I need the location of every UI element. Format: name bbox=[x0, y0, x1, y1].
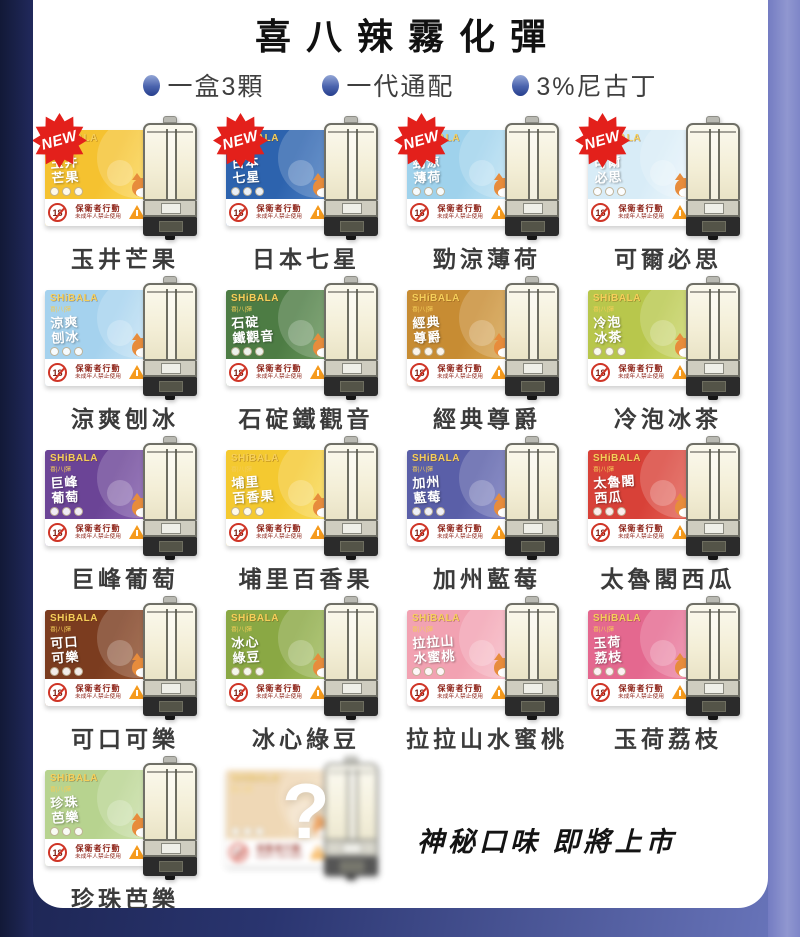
product-box: SHiBALA 喜|八|彈 埔里百香果 18 保衛者行動 未成年人禁止使用 bbox=[226, 450, 340, 546]
brand-logo: SHiBALA bbox=[231, 453, 279, 464]
pod-mouthpiece bbox=[525, 116, 539, 123]
flavor-badge-icons bbox=[412, 187, 445, 196]
pod-image bbox=[143, 276, 197, 400]
age-18-icon: 18 bbox=[410, 363, 429, 382]
age-18-icon: 18 bbox=[229, 683, 248, 702]
box-flavor-name: 冷泡冰茶 bbox=[593, 315, 623, 347]
warning-text: 保衛者行動 未成年人禁止使用 bbox=[69, 685, 127, 701]
pod-contact bbox=[708, 716, 718, 720]
pod-tank bbox=[686, 283, 740, 361]
bullet-item-nicotine: 3%尼古丁 bbox=[512, 67, 657, 103]
pod-mouthpiece bbox=[525, 276, 539, 283]
pod-base bbox=[324, 377, 378, 396]
brand-logo: SHiBALA bbox=[593, 613, 641, 624]
box-artwork: SHiBALA 喜|八|彈 可口可樂 bbox=[45, 610, 159, 679]
pod-connector bbox=[686, 521, 740, 537]
brand-logo: SHiBALA bbox=[593, 453, 641, 464]
flavor-badge-icons bbox=[231, 667, 264, 676]
pod-connector bbox=[143, 841, 197, 857]
pod-image bbox=[505, 596, 559, 720]
product-card[interactable]: SHiBALA 喜|八|彈 冰心綠豆 18 保衛者行動 未成年人禁止使用 冰心綠… bbox=[220, 588, 401, 748]
brand-subtitle: 喜|八|彈 bbox=[412, 625, 433, 634]
pod-mouthpiece bbox=[344, 436, 358, 443]
pod-image bbox=[324, 596, 378, 720]
pod-mouthpiece bbox=[525, 596, 539, 603]
product-card[interactable]: SHiBALA 喜|八|彈 埔里百香果 18 保衛者行動 未成年人禁止使用 埔里… bbox=[220, 428, 401, 588]
pod-tank bbox=[505, 123, 559, 201]
pod-image bbox=[686, 596, 740, 720]
pod-tank bbox=[324, 283, 378, 361]
pod-tank bbox=[143, 283, 197, 361]
pod-connector bbox=[324, 521, 378, 537]
warning-strip: 18 保衛者行動 未成年人禁止使用 bbox=[588, 679, 702, 706]
pod-image bbox=[143, 756, 197, 880]
pod-tank bbox=[505, 443, 559, 521]
pod-image bbox=[505, 436, 559, 560]
warning-strip: 18 保衛者行動 未成年人禁止使用 bbox=[588, 519, 702, 546]
product-box: SHiBALA 喜|八|彈 加州藍莓 18 保衛者行動 未成年人禁止使用 bbox=[407, 450, 521, 546]
age-18-icon: 18 bbox=[410, 523, 429, 542]
pod-image bbox=[143, 116, 197, 240]
box-artwork: SHiBALA 喜|八|彈 埔里百香果 bbox=[226, 450, 340, 519]
box-artwork: SHiBALA 喜|八|彈 拉拉山水蜜桃 bbox=[407, 610, 521, 679]
box-flavor-name: 經典尊爵 bbox=[412, 315, 442, 347]
brand-subtitle: 喜|八|彈 bbox=[593, 625, 614, 634]
pod-image bbox=[324, 436, 378, 560]
pod-mouthpiece bbox=[163, 596, 177, 603]
age-18-icon: 18 bbox=[48, 523, 67, 542]
product-card[interactable]: SHiBALA 喜|八|彈 巨峰葡萄 18 保衛者行動 未成年人禁止使用 巨峰葡… bbox=[39, 428, 220, 588]
pod-base bbox=[686, 217, 740, 236]
pod-tank bbox=[143, 443, 197, 521]
pod-tank bbox=[143, 123, 197, 201]
age-18-icon: 18 bbox=[48, 203, 67, 222]
pod-tank bbox=[505, 283, 559, 361]
pod-base bbox=[686, 377, 740, 396]
product-box: SHiBALA 喜|八|彈 石碇鐵觀音 18 保衛者行動 未成年人禁止使用 bbox=[226, 290, 340, 386]
pod-image bbox=[505, 276, 559, 400]
pod-connector bbox=[505, 361, 559, 377]
product-box: SHiBALA 喜|八|彈 涼爽刨冰 18 保衛者行動 未成年人禁止使用 bbox=[45, 290, 159, 386]
pod-tank bbox=[143, 603, 197, 681]
pod-contact bbox=[708, 236, 718, 240]
pod-mouthpiece bbox=[706, 276, 720, 283]
brand-logo: SHiBALA bbox=[231, 773, 279, 784]
box-artwork: SHiBALA 喜|八|彈 珍珠芭樂 bbox=[45, 770, 159, 839]
warning-text: 保衛者行動 未成年人禁止使用 bbox=[612, 365, 670, 381]
box-flavor-name: 冰心綠豆 bbox=[231, 635, 261, 667]
box-artwork: SHiBALA 喜|八|彈 冷泡冰茶 bbox=[588, 290, 702, 359]
pod-image bbox=[505, 116, 559, 240]
flavor-badge-icons bbox=[50, 507, 83, 516]
product-box: SHiBALA 喜|八|彈 珍珠芭樂 18 保衛者行動 未成年人禁止使用 bbox=[45, 770, 159, 866]
pod-contact bbox=[527, 396, 537, 400]
box-flavor-name: 拉拉山水蜜桃 bbox=[412, 634, 456, 667]
product-box: SHiBALA 喜|八|彈 冷泡冰茶 18 保衛者行動 未成年人禁止使用 bbox=[588, 290, 702, 386]
age-18-icon: 18 bbox=[48, 843, 67, 862]
warning-text: 保衛者行動 未成年人禁止使用 bbox=[69, 365, 127, 381]
flavor-badge-icons bbox=[593, 667, 626, 676]
mystery-caption: 神秘口味 即將上市 bbox=[417, 820, 677, 859]
warning-text: 保衛者行動 未成年人禁止使用 bbox=[431, 685, 489, 701]
brand-subtitle: 喜|八|彈 bbox=[50, 465, 71, 474]
brand-subtitle: 喜|八|彈 bbox=[50, 625, 71, 634]
pod-image bbox=[143, 436, 197, 560]
age-18-icon: 18 bbox=[591, 203, 610, 222]
warning-text: 保衛者行動 未成年人禁止使用 bbox=[250, 685, 308, 701]
pod-mouthpiece bbox=[163, 436, 177, 443]
product-box: SHiBALA 喜|八|彈 冰心綠豆 18 保衛者行動 未成年人禁止使用 bbox=[226, 610, 340, 706]
pod-tank bbox=[324, 763, 378, 841]
warning-strip: 18 保衛者行動 未成年人禁止使用 bbox=[45, 359, 159, 386]
box-flavor-name: 可口可樂 bbox=[50, 635, 80, 667]
pod-contact bbox=[165, 876, 175, 880]
flavor-badge-icons bbox=[412, 507, 445, 516]
pod-base bbox=[324, 537, 378, 556]
pod-base bbox=[143, 857, 197, 876]
brand-logo: SHiBALA bbox=[50, 773, 98, 784]
warning-strip: 18 保衛者行動 未成年人禁止使用 bbox=[226, 199, 340, 226]
warning-text: 保衛者行動 未成年人禁止使用 bbox=[250, 365, 308, 381]
product-card[interactable]: NEW SHiBALA 喜|八|彈 日本七星 18 保衛者行動 未成年人禁止使用… bbox=[220, 108, 401, 268]
pod-tank bbox=[505, 603, 559, 681]
product-grid: NEW SHiBALA 喜|八|彈 玉井芒果 18 保衛者行動 未成年人禁止使用… bbox=[33, 108, 768, 908]
brand-subtitle: 喜|八|彈 bbox=[412, 465, 433, 474]
brand-subtitle: 喜|八|彈 bbox=[231, 465, 252, 474]
flavor-badge-icons bbox=[231, 827, 264, 836]
brand-subtitle: 喜|八|彈 bbox=[231, 625, 252, 634]
box-flavor-name: 石碇鐵觀音 bbox=[231, 314, 275, 347]
pod-base bbox=[505, 377, 559, 396]
box-flavor-name bbox=[231, 797, 232, 812]
pod-contact bbox=[527, 556, 537, 560]
warning-strip: 18 保衛者行動 未成年人禁止使用 bbox=[407, 359, 521, 386]
box-artwork: SHiBALA 喜|八|彈 石碇鐵觀音 bbox=[226, 290, 340, 359]
product-name-label: 珍珠芭樂 bbox=[39, 880, 211, 908]
age-18-icon: 18 bbox=[229, 363, 248, 382]
warning-strip: 18 保衛者行動 未成年人禁止使用 bbox=[588, 199, 702, 226]
pod-contact bbox=[346, 716, 356, 720]
product-card[interactable]: SHiBALA 喜|八|彈 可口可樂 18 保衛者行動 未成年人禁止使用 可口可… bbox=[39, 588, 220, 748]
pod-base bbox=[143, 217, 197, 236]
pod-base bbox=[505, 217, 559, 236]
pod-base bbox=[505, 697, 559, 716]
bullet-dot-icon bbox=[322, 75, 339, 96]
pod-contact bbox=[165, 396, 175, 400]
product-box: SHiBALA 喜|八|彈 玉荷荔枝 18 保衛者行動 未成年人禁止使用 bbox=[588, 610, 702, 706]
box-artwork: SHiBALA 喜|八|彈 巨峰葡萄 bbox=[45, 450, 159, 519]
pod-contact bbox=[346, 236, 356, 240]
pod-tank bbox=[686, 603, 740, 681]
warning-text: 保衛者行動 未成年人禁止使用 bbox=[69, 205, 127, 221]
pod-connector bbox=[686, 361, 740, 377]
product-box: SHiBALA 喜|八|彈 可口可樂 18 保衛者行動 未成年人禁止使用 bbox=[45, 610, 159, 706]
product-card[interactable]: SHiBALA 喜|八|彈 冷泡冰茶 18 保衛者行動 未成年人禁止使用 冷泡冰… bbox=[582, 268, 763, 428]
pod-connector bbox=[505, 681, 559, 697]
pod-image bbox=[686, 116, 740, 240]
question-mark: ? bbox=[282, 766, 330, 857]
brand-logo: SHiBALA bbox=[412, 613, 460, 624]
brand-logo: SHiBALA bbox=[412, 453, 460, 464]
pod-mouthpiece bbox=[706, 116, 720, 123]
warning-text: 保衛者行動 未成年人禁止使用 bbox=[612, 685, 670, 701]
bullet-list: 一盒3顆 一代通配 3%尼古丁 bbox=[33, 70, 768, 100]
product-card[interactable]: SHiBALA 喜|八|彈 珍珠芭樂 18 保衛者行動 未成年人禁止使用 珍珠芭… bbox=[39, 748, 220, 908]
warning-strip: 18 保衛者行動 未成年人禁止使用 bbox=[45, 839, 159, 866]
pod-contact bbox=[708, 556, 718, 560]
pod-tank bbox=[686, 123, 740, 201]
pod-mouthpiece bbox=[344, 596, 358, 603]
warning-strip: 18 保衛者行動 未成年人禁止使用 bbox=[407, 519, 521, 546]
pod-image bbox=[324, 756, 378, 880]
flavor-badge-icons bbox=[50, 347, 83, 356]
warning-strip: 18 保衛者行動 未成年人禁止使用 bbox=[226, 519, 340, 546]
page-title: 喜八辣霧化彈 bbox=[33, 0, 768, 60]
pod-base bbox=[505, 537, 559, 556]
pod-base bbox=[143, 537, 197, 556]
product-box: SHiBALA 喜|八|彈 拉拉山水蜜桃 18 保衛者行動 未成年人禁止使用 bbox=[407, 610, 521, 706]
flavor-badge-icons bbox=[231, 507, 264, 516]
warning-text: 保衛者行動 未成年人禁止使用 bbox=[431, 205, 489, 221]
age-18-icon: 18 bbox=[591, 523, 610, 542]
age-18-icon: 18 bbox=[591, 683, 610, 702]
flavor-badge-icons bbox=[593, 507, 626, 516]
pod-contact bbox=[165, 716, 175, 720]
product-card[interactable]: SHiBALA 喜|八|彈 太魯閣西瓜 18 保衛者行動 未成年人禁止使用 太魯… bbox=[582, 428, 763, 588]
brand-logo: SHiBALA bbox=[50, 613, 98, 624]
pod-contact bbox=[346, 876, 356, 880]
pod-contact bbox=[346, 396, 356, 400]
box-flavor-name: 涼爽刨冰 bbox=[50, 315, 80, 347]
pod-connector bbox=[505, 201, 559, 217]
pod-connector bbox=[143, 201, 197, 217]
brand-subtitle: 喜|八|彈 bbox=[50, 305, 71, 314]
brand-logo: SHiBALA bbox=[50, 293, 98, 304]
box-artwork: SHiBALA 喜|八|彈 加州藍莓 bbox=[407, 450, 521, 519]
age-18-icon: 18 bbox=[229, 523, 248, 542]
warning-strip: 18 保衛者行動 未成年人禁止使用 bbox=[226, 359, 340, 386]
brand-subtitle: 喜|八|彈 bbox=[231, 305, 252, 314]
bullet-item-compatibility: 一代通配 bbox=[322, 67, 454, 103]
flavor-badge-icons bbox=[50, 667, 83, 676]
product-card[interactable]: SHiBALA 喜|八|彈 拉拉山水蜜桃 18 保衛者行動 未成年人禁止使用 拉… bbox=[401, 588, 582, 748]
warning-text: 保衛者行動 未成年人禁止使用 bbox=[612, 205, 670, 221]
product-card[interactable]: SHiBALA 喜|八|彈 經典尊爵 18 保衛者行動 未成年人禁止使用 經典尊… bbox=[401, 268, 582, 428]
flavor-badge-icons bbox=[593, 347, 626, 356]
pod-connector bbox=[505, 521, 559, 537]
product-card[interactable]: SHiBALA 喜|八|彈 加州藍莓 18 保衛者行動 未成年人禁止使用 加州藍… bbox=[401, 428, 582, 588]
box-artwork: SHiBALA 喜|八|彈 冰心綠豆 bbox=[226, 610, 340, 679]
age-18-icon: 18 bbox=[48, 363, 67, 382]
pod-connector bbox=[324, 201, 378, 217]
pod-mouthpiece bbox=[163, 276, 177, 283]
pod-base bbox=[143, 697, 197, 716]
pod-mouthpiece bbox=[163, 756, 177, 763]
pod-mouthpiece bbox=[344, 116, 358, 123]
box-flavor-name: 加州藍莓 bbox=[412, 475, 442, 507]
product-name-label: 拉拉山水蜜桃 bbox=[401, 720, 573, 754]
brand-logo: SHiBALA bbox=[412, 293, 460, 304]
pod-image bbox=[686, 276, 740, 400]
pod-tank bbox=[324, 123, 378, 201]
box-flavor-name: 埔里百香果 bbox=[231, 474, 275, 507]
pod-base bbox=[143, 377, 197, 396]
pod-mouthpiece bbox=[344, 276, 358, 283]
pod-image bbox=[324, 276, 378, 400]
pod-connector bbox=[143, 681, 197, 697]
product-card[interactable]: SHiBALA 喜|八|彈 石碇鐵觀音 18 保衛者行動 未成年人禁止使用 石碇… bbox=[220, 268, 401, 428]
product-card[interactable]: SHiBALA 喜|八|彈 玉荷荔枝 18 保衛者行動 未成年人禁止使用 玉荷荔… bbox=[582, 588, 763, 748]
warning-text: 保衛者行動 未成年人禁止使用 bbox=[431, 525, 489, 541]
box-artwork: SHiBALA 喜|八|彈 經典尊爵 bbox=[407, 290, 521, 359]
brand-logo: SHiBALA bbox=[593, 293, 641, 304]
bullet-item-box-count: 一盒3顆 bbox=[143, 67, 264, 103]
pod-base bbox=[324, 857, 378, 876]
flavor-badge-icons bbox=[231, 347, 264, 356]
pod-tank bbox=[686, 443, 740, 521]
pod-base bbox=[324, 697, 378, 716]
pod-contact bbox=[527, 716, 537, 720]
warning-text: 保衛者行動 未成年人禁止使用 bbox=[431, 365, 489, 381]
pod-image bbox=[143, 596, 197, 720]
brand-subtitle: 喜|八|彈 bbox=[412, 305, 433, 314]
box-artwork: SHiBALA 喜|八|彈 涼爽刨冰 bbox=[45, 290, 159, 359]
pod-connector bbox=[143, 521, 197, 537]
warning-text: 保衛者行動 未成年人禁止使用 bbox=[250, 525, 308, 541]
box-flavor-name: 玉荷荔枝 bbox=[593, 635, 623, 667]
box-artwork: SHiBALA 喜|八|彈 太魯閣西瓜 bbox=[588, 450, 702, 519]
warning-strip: 18 保衛者行動 未成年人禁止使用 bbox=[588, 359, 702, 386]
pod-connector bbox=[324, 681, 378, 697]
box-flavor-name: 太魯閣西瓜 bbox=[593, 474, 637, 507]
mystery-product-card[interactable]: SHiBALA 喜|八|彈 18 保衛者行動 未成年人禁止使用 ? bbox=[220, 748, 401, 908]
product-card[interactable]: NEW SHiBALA 喜|八|彈 玉井芒果 18 保衛者行動 未成年人禁止使用… bbox=[39, 108, 220, 268]
right-border bbox=[768, 0, 800, 937]
pod-mouthpiece bbox=[344, 756, 358, 763]
box-flavor-name: 珍珠芭樂 bbox=[50, 795, 80, 827]
warning-text: 保衛者行動 未成年人禁止使用 bbox=[69, 845, 127, 861]
pod-tank bbox=[143, 763, 197, 841]
pod-tank bbox=[324, 443, 378, 521]
flavor-badge-icons bbox=[50, 827, 83, 836]
pod-contact bbox=[708, 396, 718, 400]
brand-logo: SHiBALA bbox=[231, 293, 279, 304]
pod-contact bbox=[346, 556, 356, 560]
age-18-icon: 18 bbox=[410, 203, 429, 222]
warning-strip: 18 保衛者行動 未成年人禁止使用 bbox=[45, 519, 159, 546]
warning-text: 保衛者行動 未成年人禁止使用 bbox=[69, 525, 127, 541]
warning-strip: 18 保衛者行動 未成年人禁止使用 bbox=[407, 679, 521, 706]
product-box: SHiBALA 喜|八|彈 經典尊爵 18 保衛者行動 未成年人禁止使用 bbox=[407, 290, 521, 386]
product-card[interactable]: NEW SHiBALA 喜|八|彈 勁涼薄荷 18 保衛者行動 未成年人禁止使用… bbox=[401, 108, 582, 268]
product-box: SHiBALA 喜|八|彈 巨峰葡萄 18 保衛者行動 未成年人禁止使用 bbox=[45, 450, 159, 546]
brand-subtitle: 喜|八|彈 bbox=[231, 785, 252, 794]
pod-image bbox=[686, 436, 740, 560]
pod-contact bbox=[527, 236, 537, 240]
pod-mouthpiece bbox=[525, 436, 539, 443]
page-card: 喜八辣霧化彈 一盒3顆 一代通配 3%尼古丁 NEW SHiBALA 喜|八|彈… bbox=[33, 0, 768, 908]
pod-connector bbox=[686, 681, 740, 697]
pod-mouthpiece bbox=[706, 596, 720, 603]
age-18-icon: 18 bbox=[48, 683, 67, 702]
pod-mouthpiece bbox=[163, 116, 177, 123]
pod-tank bbox=[324, 603, 378, 681]
warning-text: 保衛者行動 未成年人禁止使用 bbox=[612, 525, 670, 541]
pod-base bbox=[686, 697, 740, 716]
product-card[interactable]: NEW SHiBALA 喜|八|彈 可爾必思 18 保衛者行動 未成年人禁止使用… bbox=[582, 108, 763, 268]
box-artwork: SHiBALA 喜|八|彈 玉荷荔枝 bbox=[588, 610, 702, 679]
flavor-badge-icons bbox=[412, 347, 445, 356]
flavor-badge-icons bbox=[50, 187, 83, 196]
left-border bbox=[0, 0, 33, 937]
warning-strip: 18 保衛者行動 未成年人禁止使用 bbox=[407, 199, 521, 226]
pod-contact bbox=[165, 236, 175, 240]
pod-mouthpiece bbox=[706, 436, 720, 443]
box-flavor-name: 巨峰葡萄 bbox=[50, 475, 80, 507]
flavor-badge-icons bbox=[231, 187, 264, 196]
pod-connector bbox=[324, 841, 378, 857]
brand-subtitle: 喜|八|彈 bbox=[50, 785, 71, 794]
warning-strip: 18 保衛者行動 未成年人禁止使用 bbox=[226, 679, 340, 706]
brand-logo: SHiBALA bbox=[50, 453, 98, 464]
product-name-label: 玉荷荔枝 bbox=[582, 720, 754, 754]
pod-connector bbox=[324, 361, 378, 377]
pod-connector bbox=[143, 361, 197, 377]
flavor-badge-icons bbox=[412, 667, 445, 676]
age-18-icon: 18 bbox=[591, 363, 610, 382]
warning-text: 保衛者行動 未成年人禁止使用 bbox=[250, 205, 308, 221]
age-18-icon: 18 bbox=[410, 683, 429, 702]
warning-strip: 18 保衛者行動 未成年人禁止使用 bbox=[45, 679, 159, 706]
bullet-dot-icon bbox=[512, 75, 529, 96]
pod-base bbox=[686, 537, 740, 556]
warning-strip: 18 保衛者行動 未成年人禁止使用 bbox=[45, 199, 159, 226]
brand-subtitle: 喜|八|彈 bbox=[593, 465, 614, 474]
product-card[interactable]: SHiBALA 喜|八|彈 涼爽刨冰 18 保衛者行動 未成年人禁止使用 涼爽刨… bbox=[39, 268, 220, 428]
age-18-icon: 18 bbox=[229, 843, 248, 862]
pod-connector bbox=[686, 201, 740, 217]
flavor-badge-icons bbox=[593, 187, 626, 196]
pod-contact bbox=[165, 556, 175, 560]
product-box: SHiBALA 喜|八|彈 太魯閣西瓜 18 保衛者行動 未成年人禁止使用 bbox=[588, 450, 702, 546]
pod-base bbox=[324, 217, 378, 236]
pod-image bbox=[324, 116, 378, 240]
age-18-icon: 18 bbox=[229, 203, 248, 222]
brand-logo: SHiBALA bbox=[231, 613, 279, 624]
brand-subtitle: 喜|八|彈 bbox=[593, 305, 614, 314]
bullet-dot-icon bbox=[143, 75, 160, 96]
